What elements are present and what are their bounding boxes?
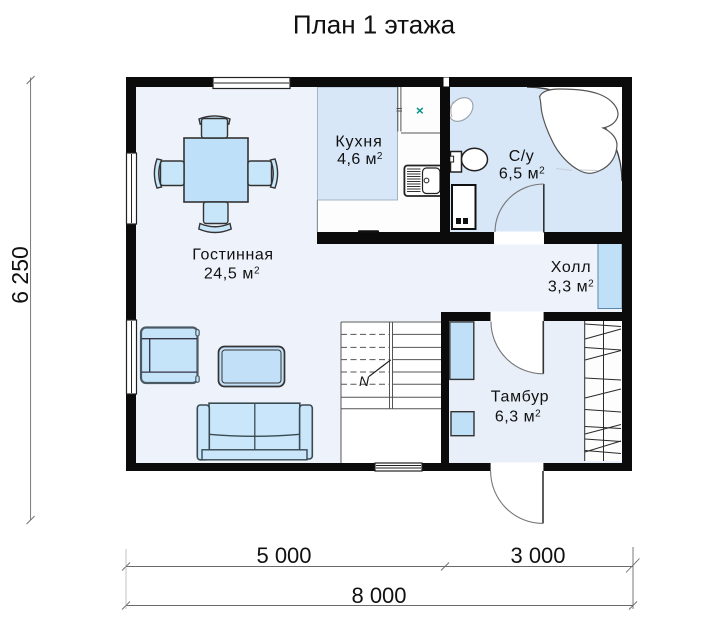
- svg-text:Гостинная: Гостинная: [192, 247, 273, 264]
- svg-text:4,6 м2: 4,6 м2: [337, 151, 383, 168]
- svg-text:6,3 м2: 6,3 м2: [495, 409, 541, 426]
- svg-text:3,3 м2: 3,3 м2: [548, 279, 594, 296]
- svg-text:3 000: 3 000: [510, 543, 565, 568]
- svg-text:6,5 м2: 6,5 м2: [499, 166, 545, 183]
- svg-text:8 000: 8 000: [351, 583, 406, 608]
- svg-text:24,5 м2: 24,5 м2: [204, 266, 260, 283]
- svg-text:Холл: Холл: [551, 259, 592, 276]
- svg-text:Кухня: Кухня: [335, 134, 382, 151]
- svg-text:План 1 этажа: План 1 этажа: [293, 10, 456, 40]
- svg-text:Тамбур: Тамбур: [491, 389, 550, 406]
- svg-text:С/у: С/у: [509, 148, 535, 165]
- svg-text:5 000: 5 000: [256, 543, 311, 568]
- svg-text:6 250: 6 250: [7, 246, 33, 304]
- svg-text:N: N: [359, 373, 370, 389]
